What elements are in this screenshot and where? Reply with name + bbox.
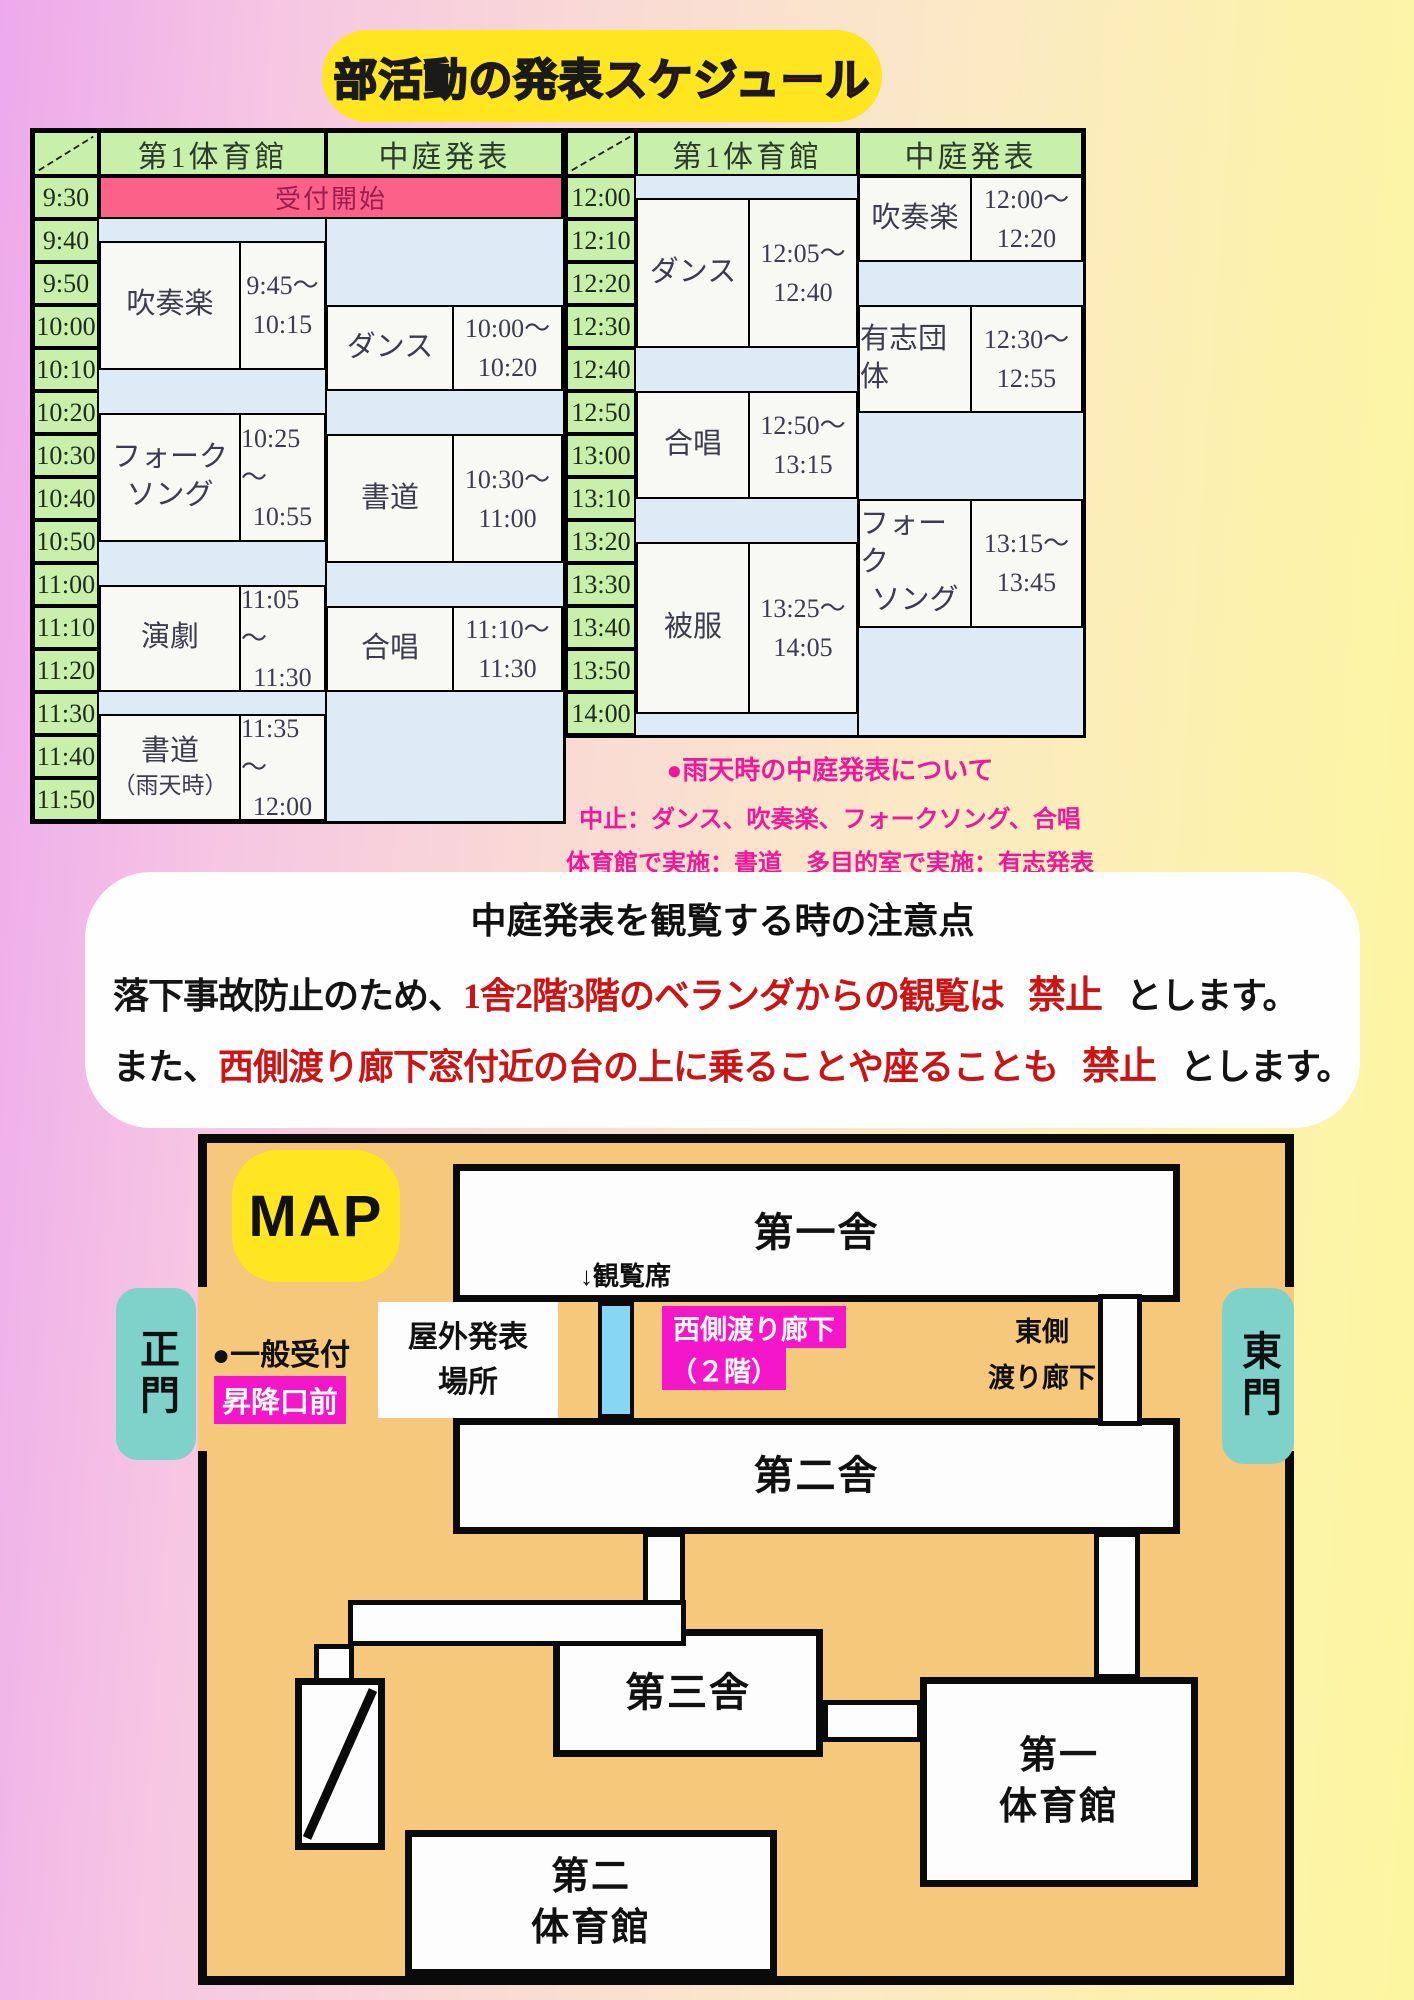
time-cell: 12:30 — [566, 305, 636, 348]
east-corridor-label-line: 渡り廊下 — [986, 1356, 1098, 1402]
time-cell: 11:50 — [33, 778, 99, 821]
event-name: 書道 — [328, 436, 454, 561]
table-corner-cell — [566, 131, 636, 176]
time-cell: 13:30 — [566, 563, 636, 606]
time-cell: 11:10 — [33, 606, 99, 649]
event-block: ダンス12:05～12:40 — [636, 198, 858, 349]
west-corridor-label: （２階） — [662, 1348, 786, 1390]
building-2: 第二舎 — [453, 1418, 1180, 1534]
event-block: 吹奏楽9:45～10:15 — [99, 241, 326, 370]
east-corridor — [1098, 1294, 1142, 1426]
time-cell: 9:30 — [33, 176, 99, 219]
west-gate: 正門 — [116, 1288, 196, 1460]
event-time: 12:00～12:20 — [972, 178, 1081, 260]
time-cell: 11:30 — [33, 692, 99, 735]
poster-page: 部活動の発表スケジュール 第1体育館中庭発表9:309:409:5010:001… — [0, 0, 1414, 2000]
event-time: 12:30～12:55 — [972, 307, 1081, 411]
event-block: 吹奏楽12:00～12:20 — [858, 176, 1083, 262]
time-cell: 13:50 — [566, 649, 636, 692]
map-border — [198, 1134, 1294, 1143]
time-cell: 11:40 — [33, 735, 99, 778]
general-reception-label: ●一般受付 — [212, 1330, 350, 1374]
map-border — [198, 1134, 207, 1287]
time-cell: 13:10 — [566, 477, 636, 520]
time-cell: 13:00 — [566, 434, 636, 477]
event-block: 有志団体12:30～12:55 — [858, 305, 1083, 413]
column-header: 中庭発表 — [326, 131, 563, 176]
event-name: 吹奏楽 — [860, 178, 972, 260]
event-block: 合唱11:10～11:30 — [326, 606, 563, 692]
gym-1: 第一 体育館 — [920, 1677, 1198, 1887]
east-corridor-label: 東側 渡り廊下 — [986, 1310, 1098, 1402]
time-cell: 9:40 — [33, 219, 99, 262]
event-name: 合唱 — [328, 608, 454, 690]
event-name: 合唱 — [638, 393, 750, 497]
notice-warning-text: 1舎2階3階のベランダからの観覧は — [463, 976, 1004, 1016]
time-cell: 12:10 — [566, 219, 636, 262]
gym-1-label: 第一 — [1019, 1731, 1099, 1782]
event-block: 書道（雨天時）11:35～12:00 — [99, 714, 326, 822]
time-cell: 10:30 — [33, 434, 99, 477]
map-border — [1285, 1134, 1294, 1287]
building-3: 第三舎 — [553, 1629, 823, 1757]
spectator-seats-label: ↓観覧席 — [580, 1256, 671, 1293]
time-cell: 13:20 — [566, 520, 636, 563]
building-1: 第一舎 — [453, 1164, 1180, 1302]
time-cell: 9:50 — [33, 262, 99, 305]
event-name: ダンス — [328, 307, 454, 389]
east-gate: 東門 — [1222, 1288, 1294, 1464]
schedule-table: 第1体育館中庭発表12:0012:1012:2012:3012:4012:501… — [563, 128, 1086, 738]
east-corridor-lower — [1094, 1532, 1140, 1679]
notice-warning-text: 西側渡り廊下窓付近の台の上に乗ることや座ることも — [218, 1047, 1058, 1087]
gym-1-label: 体育館 — [999, 1782, 1119, 1833]
diagonal-line-icon — [302, 1685, 378, 1843]
notice-title: 中庭発表を観覧する時の注意点 — [113, 892, 1332, 944]
east-corridor-label-line: 東側 — [986, 1310, 1098, 1356]
outdoor-stage-label: 屋外発表 — [408, 1315, 528, 1360]
time-cell: 10:10 — [33, 348, 99, 391]
diagonal-slash-icon — [568, 133, 634, 174]
map-border — [198, 1451, 207, 1985]
event-name: 有志団体 — [860, 307, 972, 411]
reception-place-label: 昇降口前 — [214, 1376, 346, 1424]
notice-line-2: また、西側渡り廊下窓付近の台の上に乗ることや座ることも禁止とします。 — [113, 1035, 1332, 1090]
event-name: 吹奏楽 — [101, 243, 241, 368]
map-label-pill: MAP — [232, 1150, 400, 1282]
time-cell: 12:20 — [566, 262, 636, 305]
notice-text: とします。 — [1180, 1047, 1351, 1087]
column-header: 第1体育館 — [99, 131, 326, 176]
event-time: 9:45～10:15 — [241, 243, 324, 368]
time-cell: 10:20 — [33, 391, 99, 434]
event-time: 10:30～11:00 — [454, 436, 561, 561]
event-name: フォークソング — [860, 501, 972, 626]
event-time: 13:25～14:05 — [750, 544, 856, 712]
notice-line-1: 落下事故防止のため、1舎2階3階のベランダからの観覧は禁止とします。 — [113, 964, 1332, 1019]
diagonal-slash-icon — [35, 133, 97, 174]
notice-text: また、 — [113, 1047, 218, 1087]
time-cell: 14:00 — [566, 692, 636, 735]
time-cell: 13:40 — [566, 606, 636, 649]
notice-text: 落下事故防止のため、 — [113, 976, 463, 1016]
event-name: フォークソング — [101, 415, 241, 540]
corridor — [823, 1700, 922, 1742]
notice-box: 中庭発表を観覧する時の注意点 落下事故防止のため、1舎2階3階のベランダからの観… — [85, 872, 1360, 1128]
west-corridor-label: 西側渡り廊下 — [662, 1306, 846, 1348]
title-banner: 部活動の発表スケジュール — [322, 30, 882, 122]
event-block: 合唱12:50～13:15 — [636, 391, 858, 499]
event-block: 書道10:30～11:00 — [326, 434, 563, 563]
event-time: 11:35～12:00 — [241, 716, 324, 820]
time-cell: 11:20 — [33, 649, 99, 692]
event-time: 10:00～10:20 — [454, 307, 561, 389]
map-label: MAP — [249, 1183, 384, 1250]
building-3-label: 第三舎 — [625, 1666, 751, 1720]
event-time: 10:25～10:55 — [241, 415, 324, 540]
schedule-table: 第1体育館中庭発表9:309:409:5010:0010:1010:2010:3… — [30, 128, 566, 824]
map-border — [198, 1976, 1294, 1985]
time-cell: 12:50 — [566, 391, 636, 434]
gym-2-label: 体育館 — [531, 1903, 651, 1954]
event-time: 13:15～13:45 — [972, 501, 1081, 626]
event-block: フォークソング10:25～10:55 — [99, 413, 326, 542]
table-corner-cell — [33, 131, 99, 176]
small-structure — [295, 1678, 385, 1850]
event-block: 被服13:25～14:05 — [636, 542, 858, 714]
notice-ban-word: 禁止 — [1028, 975, 1102, 1017]
map-border — [1285, 1451, 1294, 1985]
time-cell: 10:40 — [33, 477, 99, 520]
event-block: 演劇11:05～11:30 — [99, 585, 326, 693]
outdoor-stage-area: 屋外発表 場所 — [378, 1302, 558, 1418]
gym-2-label: 第二 — [551, 1852, 631, 1903]
time-cell: 10:50 — [33, 520, 99, 563]
column-header: 第1体育館 — [636, 131, 858, 176]
page-title: 部活動の発表スケジュール — [334, 44, 871, 108]
corridor — [643, 1532, 685, 1606]
time-cell: 12:00 — [566, 176, 636, 219]
rain-note-line: 中止：ダンス、吹奏楽、フォークソング、合唱 — [560, 799, 1100, 834]
time-cell: 12:40 — [566, 348, 636, 391]
building-2-label: 第二舎 — [754, 1449, 880, 1503]
rain-note-heading: ●雨天時の中庭発表について — [560, 750, 1100, 787]
event-time: 12:05～12:40 — [750, 200, 856, 347]
event-time: 11:10～11:30 — [454, 608, 561, 690]
notice-ban-word: 禁止 — [1082, 1046, 1156, 1088]
event-block: ダンス10:00～10:20 — [326, 305, 563, 391]
event-block: フォークソング13:15～13:45 — [858, 499, 1083, 628]
event-time: 11:05～11:30 — [241, 587, 324, 691]
event-name: ダンス — [638, 200, 750, 347]
spectator-seats-bar — [598, 1302, 634, 1418]
building-1-label: 第一舎 — [754, 1206, 880, 1260]
event-time: 12:50～13:15 — [750, 393, 856, 497]
campus-map: MAP 第一舎 第二舎 第三舎 第一 体育館 第二 体育館 — [198, 1134, 1294, 1985]
outdoor-stage-label: 場所 — [438, 1360, 498, 1405]
gym-2: 第二 体育館 — [405, 1830, 777, 1976]
time-cell: 10:00 — [33, 305, 99, 348]
event-name: 書道（雨天時） — [101, 716, 241, 820]
notice-text: とします。 — [1126, 976, 1297, 1016]
event-name: 被服 — [638, 544, 750, 712]
column-header: 中庭発表 — [858, 131, 1083, 176]
corridor — [348, 1600, 686, 1646]
time-cell: 11:00 — [33, 563, 99, 606]
event-name: 演劇 — [101, 587, 241, 691]
rain-note: ●雨天時の中庭発表について 中止：ダンス、吹奏楽、フォークソング、合唱 体育館で… — [560, 750, 1100, 887]
reception-row: 受付開始 — [99, 176, 563, 219]
